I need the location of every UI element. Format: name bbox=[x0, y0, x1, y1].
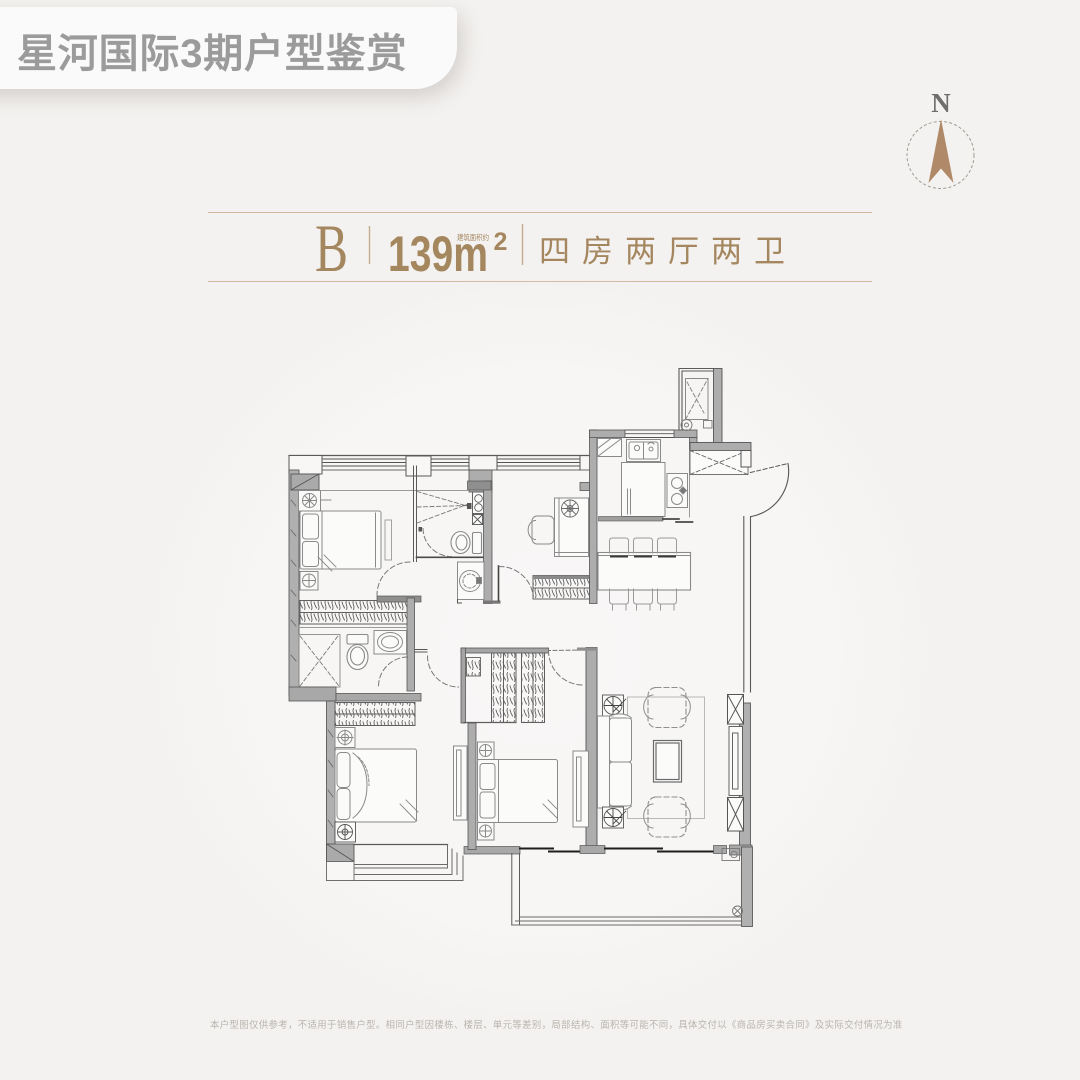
svg-text:N: N bbox=[931, 88, 951, 118]
svg-text:建筑面积约: 建筑面积约 bbox=[457, 232, 489, 242]
svg-text:B: B bbox=[315, 210, 348, 286]
svg-text:四房两厅两卫: 四房两厅两卫 bbox=[539, 234, 797, 269]
svg-text:2: 2 bbox=[494, 228, 508, 256]
